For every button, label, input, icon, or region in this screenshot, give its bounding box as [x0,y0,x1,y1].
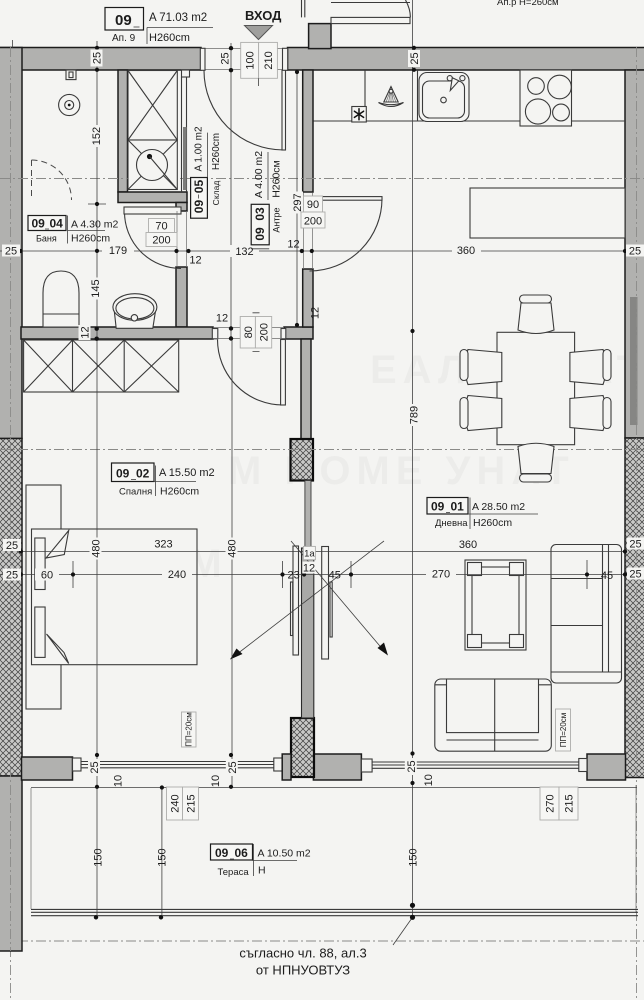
svg-text:02: 02 [136,467,150,481]
svg-text:01: 01 [451,500,465,514]
svg-text:25: 25 [629,246,641,258]
svg-text:A 15.50 m2: A 15.50 m2 [159,467,215,479]
svg-text:480: 480 [227,539,239,557]
svg-text:200: 200 [152,235,170,247]
svg-text:A 71.03 m2: A 71.03 m2 [149,12,207,24]
svg-text:215: 215 [564,794,576,812]
svg-text:25: 25 [89,761,101,773]
svg-text:152: 152 [91,127,103,145]
svg-text:25: 25 [227,761,239,773]
svg-text:03: 03 [253,207,267,221]
svg-text:60: 60 [41,570,53,582]
svg-text:1а: 1а [304,549,315,560]
svg-text:360: 360 [457,245,475,257]
svg-text:09: 09 [32,217,46,231]
svg-text:H260cm: H260cm [473,517,512,529]
svg-text:09: 09 [253,227,267,241]
svg-text:ПП=20см: ПП=20см [559,713,568,748]
svg-text:179: 179 [109,245,127,257]
svg-text:25: 25 [92,52,104,64]
svg-text:H: H [258,865,266,877]
svg-text:80: 80 [243,326,255,338]
svg-text:09: 09 [116,467,130,481]
svg-text:150: 150 [157,848,169,866]
svg-text:10: 10 [423,774,435,786]
svg-text:25: 25 [629,539,641,551]
svg-text:100: 100 [245,51,257,69]
svg-text:360: 360 [459,539,477,551]
svg-text:12: 12 [80,326,92,338]
svg-text:90: 90 [307,199,319,211]
svg-text:A 10.50 m2: A 10.50 m2 [258,848,311,860]
svg-text:ВХОД: ВХОД [245,8,282,23]
svg-text:150: 150 [93,848,105,866]
svg-text:12: 12 [189,255,201,267]
svg-text:06: 06 [235,846,249,860]
svg-text:05: 05 [192,180,206,194]
svg-text:A 4.30 m2: A 4.30 m2 [71,219,118,231]
svg-text:789: 789 [409,406,421,424]
svg-text:210: 210 [263,51,275,69]
svg-text:H260cm: H260cm [160,486,199,498]
svg-text:270: 270 [432,569,450,581]
svg-text:25: 25 [5,246,17,258]
svg-text:Антре: Антре [271,207,281,232]
svg-text:12: 12 [303,563,315,575]
svg-text:Баня: Баня [36,234,57,244]
svg-text:04: 04 [50,217,64,231]
svg-text:09: 09 [115,12,132,29]
svg-text:25: 25 [409,52,421,64]
svg-text:09: 09 [431,500,445,514]
svg-text:215: 215 [186,794,198,812]
svg-text:240: 240 [170,794,182,812]
svg-text:132: 132 [235,246,253,258]
svg-text:Ап.р Н=260см: Ап.р Н=260см [497,0,559,8]
svg-text:297: 297 [292,193,304,211]
svg-text:от НПНУОВТУЗ: от НПНУОВТУЗ [256,963,350,978]
svg-text:H260cm: H260cm [149,32,190,44]
svg-text:480: 480 [91,539,103,557]
svg-text:25: 25 [6,570,18,582]
svg-text:25: 25 [406,760,418,772]
svg-text:12: 12 [309,307,321,319]
svg-text:70: 70 [155,221,167,233]
svg-text:A 1.00 m2: A 1.00 m2 [194,126,205,171]
svg-text:A 4.00 m2: A 4.00 m2 [253,151,265,198]
svg-text:09: 09 [192,200,206,214]
svg-text:10: 10 [210,775,222,787]
svg-text:45: 45 [329,570,341,582]
svg-text:45: 45 [601,570,613,582]
svg-text:25: 25 [629,569,641,581]
svg-text:09: 09 [215,846,229,860]
svg-text:145: 145 [90,279,102,297]
svg-text:270: 270 [545,794,557,812]
svg-text:H260см: H260см [271,160,283,198]
svg-text:Дневна: Дневна [435,518,468,529]
svg-text:Тераса: Тераса [218,867,250,878]
svg-text:Склад: Склад [211,181,221,206]
svg-text:150: 150 [408,848,420,866]
svg-text:200: 200 [259,323,271,341]
svg-text:ПП=20см: ПП=20см [185,712,194,747]
svg-text:23: 23 [287,570,299,582]
svg-text:A 28.50 m2: A 28.50 m2 [472,501,525,513]
svg-text:323: 323 [154,539,172,551]
svg-text:Спалня: Спалня [119,487,152,498]
svg-text:25: 25 [6,540,18,552]
svg-text:H260cm: H260cm [211,133,222,170]
svg-text:12: 12 [287,239,299,251]
svg-text:240: 240 [168,569,186,581]
svg-text:Ап. 9: Ап. 9 [112,33,136,44]
svg-text:H260cm: H260cm [71,233,110,245]
svg-text:12: 12 [216,313,228,325]
svg-text:10: 10 [113,775,125,787]
svg-text:съгласно чл. 88, ал.3: съгласно чл. 88, ал.3 [239,946,366,961]
svg-text:25: 25 [220,52,232,64]
svg-text:200: 200 [304,216,322,228]
